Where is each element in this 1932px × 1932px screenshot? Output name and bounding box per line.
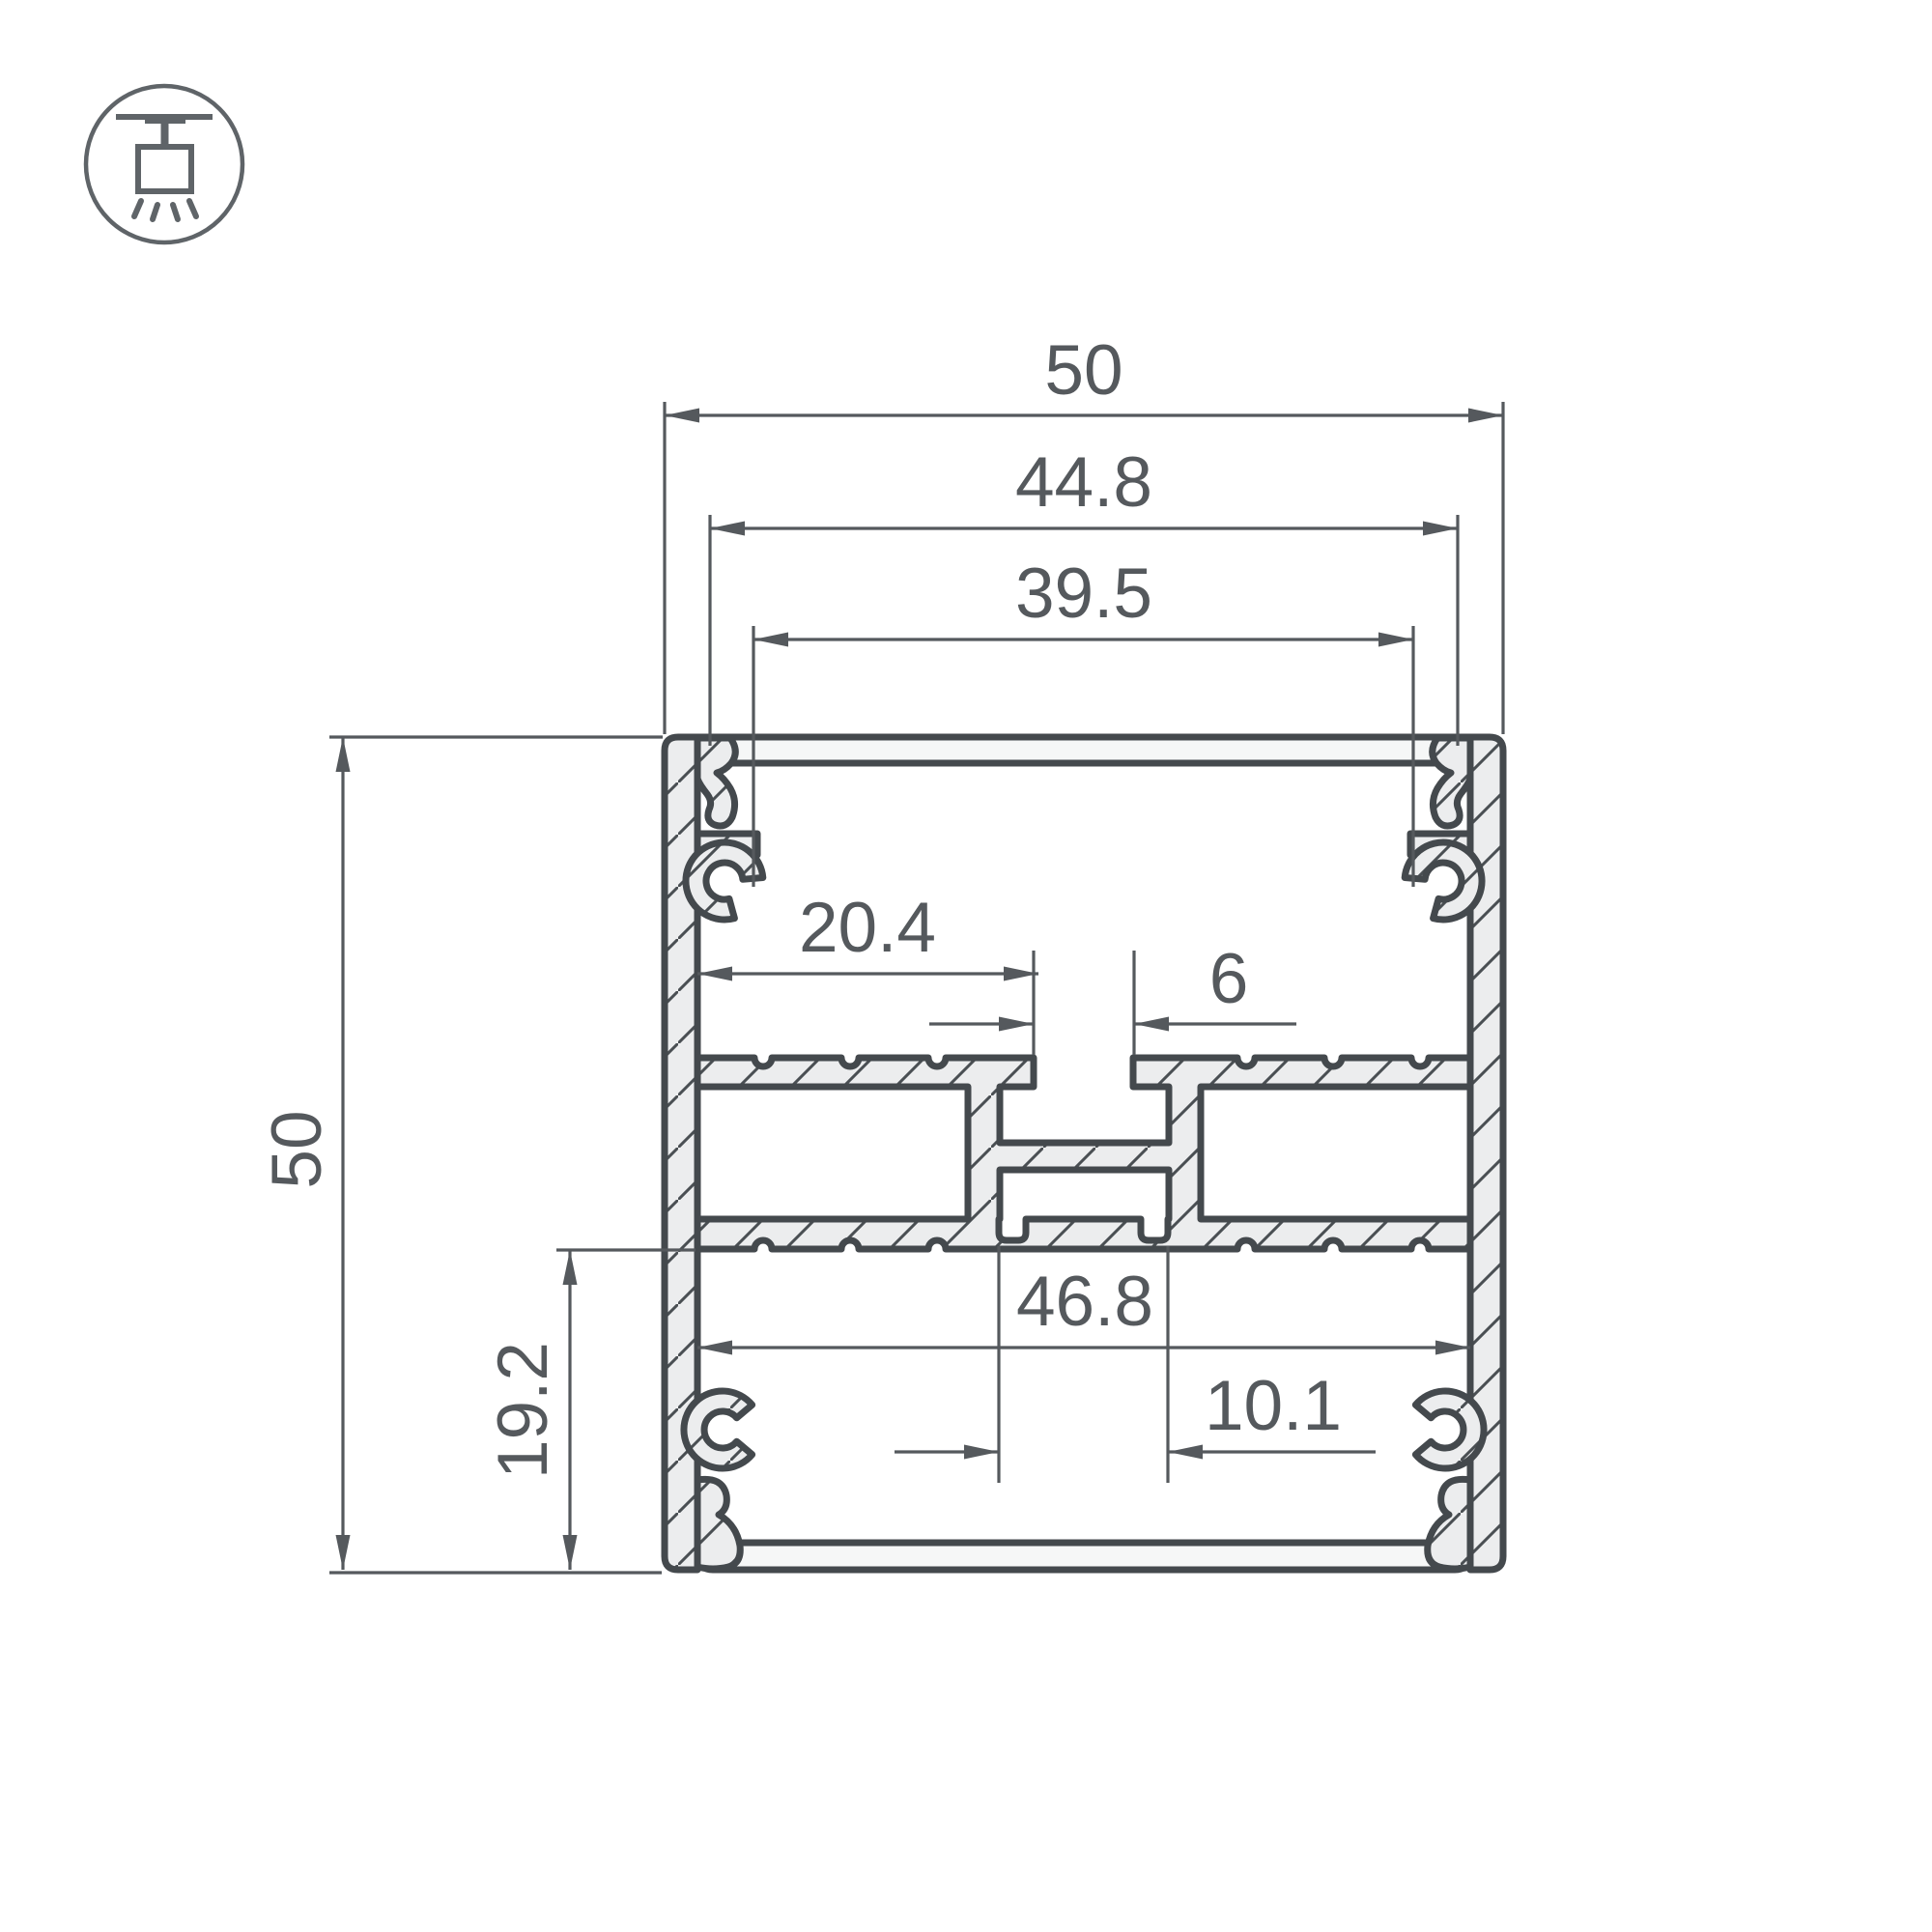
cover-hook-right [1433, 738, 1470, 826]
diffuser-clip-right [1428, 1479, 1470, 1569]
diffuser-clip-left [697, 1479, 740, 1569]
screw-channel-top-right [1405, 842, 1482, 920]
cover-hook-left [697, 738, 735, 826]
dimension-center-slot-width: 6 [929, 940, 1296, 1055]
top-cover-plate [691, 737, 1477, 763]
drawing-page: 50 44.8 39.5 50 19.2 20.4 [0, 0, 1932, 1932]
ceiling-pendant-light-icon [86, 86, 242, 242]
dimension-bottom-inner-width: 46.8 [697, 1263, 1470, 1355]
technical-drawing: 50 44.8 39.5 50 19.2 20.4 [0, 0, 1932, 1932]
screw-channel-bottom-left [684, 1391, 753, 1468]
center-slot-width-label: 6 [1209, 940, 1249, 1018]
dimension-overall-width: 50 [665, 331, 1503, 734]
center-block-width-label: 10.1 [1205, 1367, 1342, 1445]
light-rays [134, 201, 196, 219]
overall-width-label: 50 [1044, 331, 1122, 410]
dimension-overall-height: 50 [258, 737, 663, 1573]
shelf-width-label: 20.4 [799, 889, 936, 967]
profile-cross-section [665, 737, 1503, 1570]
icon-circle [86, 86, 242, 242]
bottom-diffuser-plate [699, 1543, 1468, 1570]
dimension-top-groove-width: 39.5 [753, 554, 1413, 887]
screw-channel-bottom-right [1415, 1391, 1484, 1468]
overall-height-label: 50 [258, 1110, 336, 1188]
bottom-section-height-label: 19.2 [484, 1342, 562, 1479]
top-groove-width-label: 39.5 [1015, 554, 1152, 633]
screw-channel-top-left [686, 842, 763, 920]
dimension-shelf-width: 20.4 [697, 889, 1038, 1055]
top-inner-width-label: 44.8 [1015, 443, 1152, 522]
bottom-inner-width-label: 46.8 [1016, 1263, 1153, 1341]
middle-shelf-assembly [697, 1058, 1470, 1249]
pendant-lamp-glyph [116, 114, 213, 219]
